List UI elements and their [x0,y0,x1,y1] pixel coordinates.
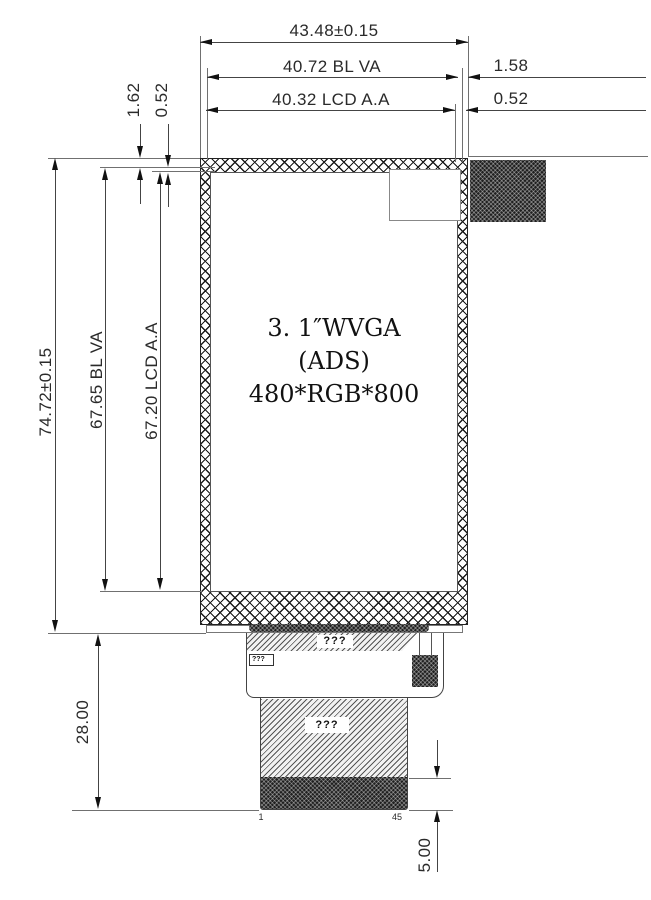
dim-arrow [95,634,101,646]
pin-number-last: 45 [392,812,402,822]
panel-type-line1: 3. 1″WVGA [200,312,468,345]
fpc-wire-right [431,633,432,657]
panel-type-line3: 480*RGB*800 [200,378,468,411]
ext-line [207,68,208,160]
dim-arrow [52,158,58,170]
pin-number-first: 1 [258,812,263,822]
dim-label-top-margin-lcd: 0.52 [152,83,172,118]
ext-line [455,104,456,162]
fpc-tail-hatch [261,699,407,777]
dim-arrow [446,74,458,80]
fpc-shoulder: ??? ??? [246,632,444,698]
dim-arrow [443,107,455,113]
dim-line [168,124,169,158]
ext-line [468,156,648,157]
fpc-connector-bar [249,624,429,632]
ext-line [100,167,215,168]
dim-arrow [165,173,171,185]
panel-type-label: 3. 1″WVGA (ADS) 480*RGB*800 [200,312,468,411]
dim-arrow [434,810,440,822]
dim-line [168,183,169,207]
dim-arrow [95,797,101,809]
dim-label-width-overall: 43.48±0.15 [290,21,379,41]
ext-line [48,633,206,634]
dim-line [468,77,646,78]
dim-label-width-bl-va: 40.72 BL VA [283,57,381,77]
ext-line [409,778,451,779]
dim-label-height-lcd-aa: 67.20 LCD A.A [142,322,162,440]
fpc-tail-label: ??? [305,717,349,733]
lcd-outline-drawing: 3. 1″WVGA (ADS) 480*RGB*800 ??? ??? ??? … [0,0,651,900]
dim-label-height-overall: 74.72±0.15 [36,348,56,437]
dim-arrow [165,155,171,167]
fpc-contact-band [261,777,407,809]
dim-arrow [157,172,163,184]
dim-line [98,646,99,800]
dim-label-contact-depth: 5.00 [415,838,435,873]
dim-arrow [102,579,108,591]
dim-label-height-bl-va: 67.65 BL VA [87,331,107,429]
dim-arrow [137,146,143,158]
dim-arrow [456,39,468,45]
fpc-part-box: ??? [249,654,274,666]
ext-line [72,810,259,811]
dim-arrow [468,74,480,80]
ext-line [100,591,202,592]
ext-line [200,36,201,158]
ext-line [48,158,200,159]
ext-line [468,36,469,157]
fpc-wire-left [419,633,420,657]
dim-line [437,820,438,872]
dim-arrow [200,39,212,45]
dim-arrow [434,766,440,778]
dim-arrow [52,620,58,632]
dim-line [140,178,141,204]
fpc-stiffener-label: ??? [317,635,353,648]
dim-line [466,110,646,111]
ext-line [409,810,453,811]
dim-line [140,124,141,148]
dim-label-width-lcd-aa: 40.32 LCD A.A [272,90,390,110]
fpc-component [412,655,438,687]
dim-line [437,740,438,769]
adhesive-tape [470,160,546,222]
dim-label-right-margin-bl: 1.58 [494,56,529,76]
panel-type-line2: (ADS) [200,345,468,378]
dim-line [206,110,455,111]
dim-arrow [137,168,143,180]
ext-line [462,68,463,162]
dim-arrow [466,107,478,113]
dim-label-top-margin-bl: 1.62 [124,83,144,118]
dim-arrow [206,107,218,113]
dim-arrow [207,74,219,80]
dim-line [207,77,458,78]
dim-label-fpc-length: 28.00 [73,700,93,745]
dim-arrow [157,578,163,590]
dim-label-right-margin-lcd: 0.52 [494,89,529,109]
fpc-tail: ??? [260,690,408,810]
dim-arrow [102,168,108,180]
dim-line [200,42,468,43]
driver-ic-outline [389,169,461,221]
